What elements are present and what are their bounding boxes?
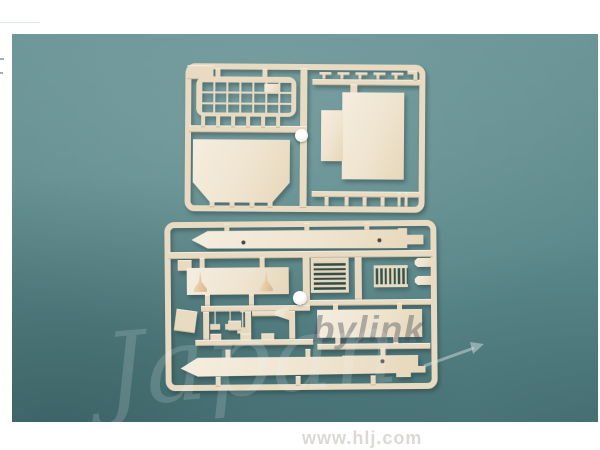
- small-bracket-part: [381, 198, 385, 207]
- small-bracket-part: [345, 197, 349, 206]
- chamfered-panel-part: [193, 139, 290, 203]
- small-bracket-part: [322, 72, 325, 79]
- sprue-gate: [224, 224, 229, 232]
- product-photo-page: bylink Japan www.hlj.com: [0, 0, 600, 450]
- watermark-script-text: Japan: [99, 287, 402, 422]
- pin-part: [398, 193, 401, 207]
- watermark-arrow-icon: [420, 330, 490, 375]
- corner-bracket-part: [413, 71, 417, 81]
- small-bracket-part: [376, 72, 379, 79]
- runner-bar: [312, 79, 420, 86]
- horizontal-grille-part: [311, 258, 349, 293]
- scan-artifact-speck: [0, 58, 4, 60]
- small-bracket-part: [358, 72, 361, 79]
- small-hatch-part: [264, 84, 278, 92]
- scan-artifact-speck: [0, 72, 3, 74]
- small-bracket-part: [325, 197, 329, 206]
- stepped-panel-part: [342, 92, 405, 179]
- scan-artifact-line: [0, 22, 40, 23]
- nozzle-fitting-part: [415, 258, 431, 267]
- mesh-grille-part: [196, 76, 296, 117]
- upper-sprue: [184, 63, 425, 213]
- hull-hole: [377, 238, 381, 242]
- pin-part: [405, 193, 408, 207]
- photo-area: bylink Japan: [12, 34, 598, 422]
- sprue-gate: [364, 222, 369, 230]
- sprue-gate: [304, 223, 309, 231]
- vertical-grille-part: [374, 265, 408, 287]
- nozzle-fitting-part: [415, 276, 431, 285]
- small-bracket-part: [340, 72, 343, 79]
- watermark-url-text: www.hlj.com: [302, 428, 422, 449]
- small-bracket-part: [394, 73, 397, 80]
- stepped-panel-wing: [321, 110, 343, 161]
- small-bracket-part: [363, 197, 367, 206]
- ejector-dot: [295, 129, 308, 142]
- hull-hole: [241, 240, 245, 244]
- upper-hull-part: [191, 228, 423, 250]
